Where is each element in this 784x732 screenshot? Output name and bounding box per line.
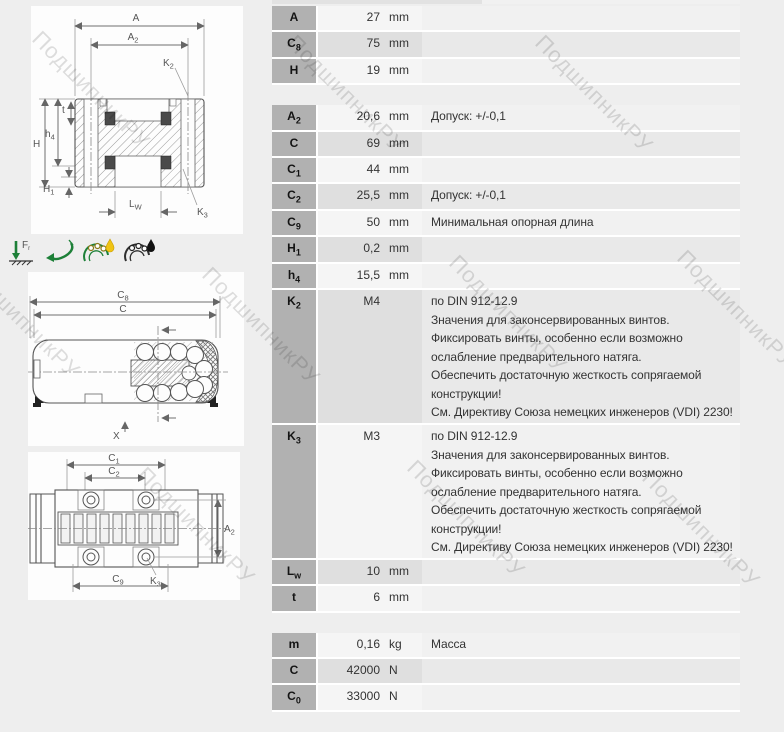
- dim-h4: h4: [45, 99, 58, 166]
- top-view-panel: C1 C2: [28, 452, 240, 600]
- row-parameter-label: H1: [272, 237, 318, 261]
- dim-label-C9: C9: [112, 574, 123, 587]
- row-parameter-label: A: [272, 6, 318, 30]
- dim-label-H1: H1: [43, 184, 54, 197]
- table-row: Lw 10 mm: [272, 560, 740, 586]
- row-note: по DIN 912-12.9 Значения для законсервир…: [422, 425, 740, 558]
- row-note: [422, 237, 740, 261]
- spec-table: A 27 mm C8 75 mm H 19 mm A2 20,6 mm Допу…: [272, 6, 740, 732]
- radial-load-label: Fr: [22, 240, 30, 252]
- row-note: [422, 6, 740, 30]
- row-value: 0,2: [318, 237, 382, 261]
- dim-label-K3: K3: [197, 207, 208, 220]
- row-parameter-label: C9: [272, 211, 318, 235]
- table-row: h4 15,5 mm: [272, 264, 740, 290]
- table-row: K3 M3 по DIN 912-12.9 Значения для закон…: [272, 425, 740, 560]
- table-row: C2 25,5 mm Допуск: +/-0,1: [272, 184, 740, 210]
- row-note: [422, 560, 740, 584]
- dim-t: t: [62, 102, 71, 125]
- table-row: m 0,16 kg Масса: [272, 633, 740, 659]
- row-value: 19: [318, 59, 382, 83]
- dim-H: H: [33, 99, 45, 187]
- side-view-panel: C8 C X: [28, 272, 244, 446]
- row-parameter-label: t: [272, 586, 318, 610]
- row-parameter-label: H: [272, 59, 318, 83]
- table-row: H 19 mm: [272, 59, 740, 85]
- row-value: M3: [318, 425, 382, 558]
- dim-label-X: X: [113, 431, 120, 442]
- row-note: Допуск: +/-0,1: [422, 184, 740, 208]
- oil-drop: [106, 239, 114, 252]
- row-note: [422, 685, 740, 709]
- cross-section-drawing: A A2 K2 H h4 t H1: [31, 6, 243, 234]
- row-value: 6: [318, 586, 382, 610]
- row-parameter-label: Lw: [272, 560, 318, 584]
- row-value: M4: [318, 290, 382, 423]
- dim-label-h4: h4: [45, 129, 55, 142]
- row-note: [422, 659, 740, 683]
- table-row: K2 M4 по DIN 912-12.9 Значения для закон…: [272, 290, 740, 425]
- row-value: 42000: [318, 659, 382, 683]
- row-unit: [382, 425, 422, 558]
- dim-label-C1: C1: [108, 453, 119, 466]
- cross-section-panel: A A2 K2 H h4 t H1: [31, 6, 243, 234]
- row-note: [422, 132, 740, 156]
- row-unit: mm: [382, 105, 422, 129]
- dim-label-C: C: [119, 304, 126, 315]
- dim-label-A2: A2: [128, 32, 139, 45]
- top-view-drawing: C1 C2: [28, 452, 240, 600]
- row-unit: mm: [382, 560, 422, 584]
- row-note: по DIN 912-12.9 Значения для законсервир…: [422, 290, 740, 423]
- grease-lubrication-icon: [123, 238, 157, 266]
- side-view-drawing: C8 C X: [28, 272, 244, 446]
- row-value: 44: [318, 158, 382, 182]
- row-unit: mm: [382, 59, 422, 83]
- row-unit: [382, 290, 422, 423]
- spec-group-dimensions-main: A 27 mm C8 75 mm H 19 mm: [272, 6, 740, 85]
- row-note: [422, 586, 740, 610]
- carriage-top-body: [28, 490, 226, 567]
- dim-LW: LW: [99, 199, 177, 212]
- row-parameter-label: K3: [272, 425, 318, 558]
- cropped-row-edge: [272, 0, 482, 4]
- spec-group-dimensions-detail: A2 20,6 mm Допуск: +/-0,1 C 69 mm C1 44 …: [272, 105, 740, 613]
- radial-load-icon: Fr: [8, 238, 38, 266]
- row-note: Допуск: +/-0,1: [422, 105, 740, 129]
- row-parameter-label: C: [272, 659, 318, 683]
- row-unit: mm: [382, 264, 422, 288]
- oil-lubrication-icon: [82, 238, 116, 266]
- row-unit: mm: [382, 158, 422, 182]
- dim-H1: H1: [43, 167, 69, 198]
- row-unit: N: [382, 685, 422, 709]
- row-parameter-label: C8: [272, 32, 318, 56]
- row-value: 0,16: [318, 633, 382, 657]
- row-unit: mm: [382, 237, 422, 261]
- row-parameter-label: K2: [272, 290, 318, 423]
- grease-drop: [147, 239, 155, 252]
- spec-group-performance: m 0,16 kg Масса C 42000 N C0 33000 N: [272, 633, 740, 712]
- row-unit: mm: [382, 132, 422, 156]
- dim-label-t: t: [62, 105, 65, 116]
- detail-X-marker: X: [113, 422, 125, 442]
- row-parameter-label: C2: [272, 184, 318, 208]
- row-value: 27: [318, 6, 382, 30]
- table-row: H1 0,2 mm: [272, 237, 740, 263]
- row-note: [422, 59, 740, 83]
- row-parameter-label: C: [272, 132, 318, 156]
- dim-label-A2: A2: [224, 524, 235, 537]
- table-row: C1 44 mm: [272, 158, 740, 184]
- dim-A2: A2: [91, 32, 188, 45]
- row-value: 25,5: [318, 184, 382, 208]
- return-block: [131, 360, 189, 386]
- row-parameter-label: C1: [272, 158, 318, 182]
- table-row: A2 20,6 mm Допуск: +/-0,1: [272, 105, 740, 131]
- row-value: 10: [318, 560, 382, 584]
- row-note: [422, 158, 740, 182]
- carriage-side-body: [28, 340, 228, 407]
- row-value: 50: [318, 211, 382, 235]
- dim-label-K3: K3: [150, 576, 161, 589]
- row-unit: mm: [382, 32, 422, 56]
- row-parameter-label: A2: [272, 105, 318, 129]
- table-row: t 6 mm: [272, 586, 740, 612]
- dim-label-C2: C2: [108, 466, 119, 479]
- dim-C2: C2: [85, 466, 145, 479]
- table-row: C 42000 N: [272, 659, 740, 685]
- dim-C: C: [34, 304, 216, 315]
- dim-label-A: A: [133, 13, 140, 24]
- row-value: 69: [318, 132, 382, 156]
- table-row: C 69 mm: [272, 132, 740, 158]
- dim-K2: K2: [163, 58, 188, 96]
- table-row: C8 75 mm: [272, 32, 740, 58]
- row-unit: mm: [382, 586, 422, 610]
- row-unit: mm: [382, 6, 422, 30]
- dim-label-LW: LW: [129, 199, 143, 212]
- row-unit: N: [382, 659, 422, 683]
- row-value: 20,6: [318, 105, 382, 129]
- row-unit: mm: [382, 211, 422, 235]
- dim-label-H: H: [33, 139, 40, 150]
- property-icons: Fr: [8, 238, 157, 266]
- dim-label-C8: C8: [117, 290, 128, 303]
- row-value: 33000: [318, 685, 382, 709]
- row-parameter-label: h4: [272, 264, 318, 288]
- dim-C1: C1: [67, 453, 165, 466]
- table-row: A 27 mm: [272, 6, 740, 32]
- row-note: [422, 32, 740, 56]
- dim-C8: C8: [30, 290, 220, 303]
- table-row: C9 50 mm Минимальная опорная длина: [272, 211, 740, 237]
- row-value: 75: [318, 32, 382, 56]
- cropped-row-edge: [482, 0, 740, 4]
- row-value: 15,5: [318, 264, 382, 288]
- row-note: [422, 264, 740, 288]
- row-unit: kg: [382, 633, 422, 657]
- row-parameter-label: m: [272, 633, 318, 657]
- dim-A: A: [75, 13, 204, 26]
- row-note: Масса: [422, 633, 740, 657]
- row-parameter-label: C0: [272, 685, 318, 709]
- carriage-body: [75, 92, 204, 194]
- dim-label-K2: K2: [163, 58, 174, 71]
- table-row: C0 33000 N: [272, 685, 740, 711]
- row-unit: mm: [382, 184, 422, 208]
- row-note: Минимальная опорная длина: [422, 211, 740, 235]
- swivel-motion-icon: [45, 238, 75, 266]
